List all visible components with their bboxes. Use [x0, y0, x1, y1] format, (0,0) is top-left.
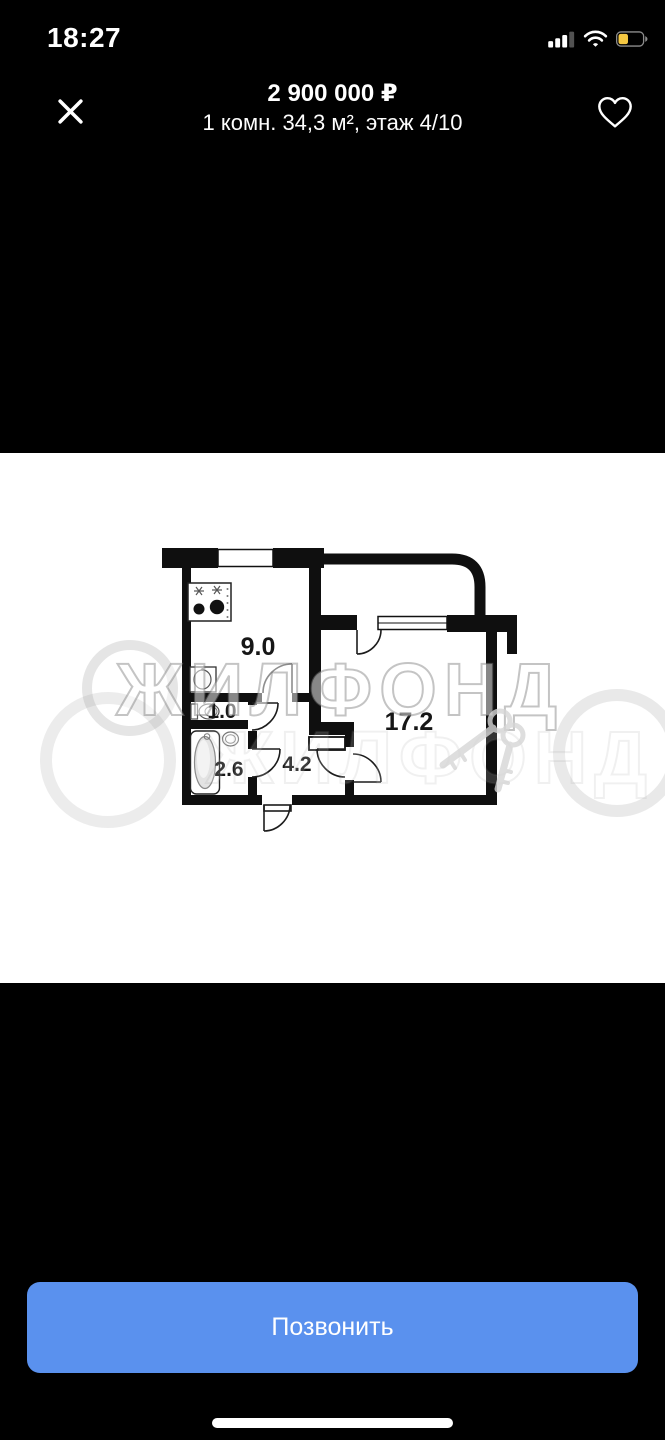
favorite-button[interactable]	[594, 92, 636, 132]
battery-icon	[616, 31, 649, 47]
kitchen-window	[218, 550, 273, 567]
listing-photo-floor-plan[interactable]: 9.0 1.0 2.6 4.2 17.2 ЖИЛФОНД ЖИЛФОНД	[0, 453, 665, 983]
status-time: 18:27	[47, 22, 121, 54]
heart-icon	[597, 96, 633, 129]
balcony-railing	[315, 559, 480, 616]
status-icons	[548, 30, 649, 48]
listing-summary: 1 комн. 34,3 м², этаж 4/10	[0, 110, 665, 136]
home-indicator[interactable]	[212, 1418, 453, 1428]
watermark-text-echo: ЖИЛФОНД	[205, 716, 654, 799]
listing-photo-viewer: 18:27 2 900 000 ₽ 1 комн. 34,3 м², этаж …	[0, 0, 665, 1440]
call-button-label: Позвонить	[271, 1313, 393, 1342]
call-button[interactable]: Позвонить	[27, 1282, 638, 1373]
stove-icon	[188, 583, 231, 621]
wifi-icon	[583, 30, 608, 48]
listing-price: 2 900 000 ₽	[0, 79, 665, 108]
cellular-signal-icon	[548, 31, 575, 48]
floor-plan-drawing: 9.0 1.0 2.6 4.2 17.2 ЖИЛФОНД ЖИЛФОНД	[0, 453, 665, 983]
agency-watermark: ЖИЛФОНД ЖИЛФОНД	[46, 645, 665, 822]
